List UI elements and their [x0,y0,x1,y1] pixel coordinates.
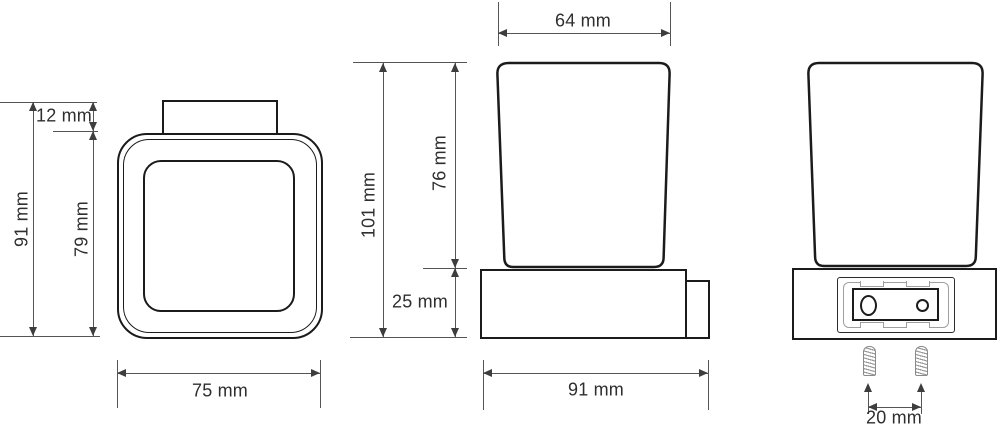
ext-line [498,2,499,46]
arrowhead-icon [451,328,459,337]
arrowhead-icon [483,369,492,377]
technical-drawing: 12 mm 91 mm 79 mm 75 mm [0,0,1000,428]
ext-line [670,2,671,46]
dim-label-holder-height: 25 mm [392,292,448,313]
arrowhead-icon [379,328,387,337]
side-view-cup [497,63,669,267]
arrowhead-icon [864,383,872,392]
dim-line-91mm [483,373,708,374]
ext-line [353,62,467,63]
screw-icon [863,346,876,376]
arrowhead-icon [498,29,507,37]
arrowhead-icon [451,259,459,268]
gasket-notch [906,322,930,328]
dim-label-cup-height: 76 mm [430,135,451,191]
cup-shapes [0,0,1000,428]
dim-label-total-height: 101 mm [359,172,380,238]
screw-round-hole [916,299,929,312]
ext-line [350,337,467,338]
arrowhead-icon [379,63,387,72]
dim-label-cup-top-width: 64 mm [555,11,611,32]
dim-label-depth: 91 mm [568,380,624,401]
side-holder-base [480,269,687,339]
gasket-notch [906,281,930,287]
screw-icon [915,346,928,376]
ext-line [708,360,709,410]
back-view-cup [808,63,982,266]
screw-slot-hole [860,295,877,316]
arrowhead-icon [699,369,708,377]
side-wall-bracket [683,280,710,339]
dim-line-101mm [383,63,384,337]
arrowhead-icon [451,63,459,72]
arrowhead-icon [917,383,925,392]
ext-line [423,268,467,269]
dim-label-screw-spacing: 20 mm [866,408,922,428]
ext-line [483,360,484,410]
arrowhead-icon [451,268,459,277]
gasket-notch [860,322,884,328]
dim-line-64mm [498,33,670,34]
dim-line-76-25mm [455,63,456,337]
gasket-notch [860,281,884,287]
arrowhead-icon [661,29,670,37]
